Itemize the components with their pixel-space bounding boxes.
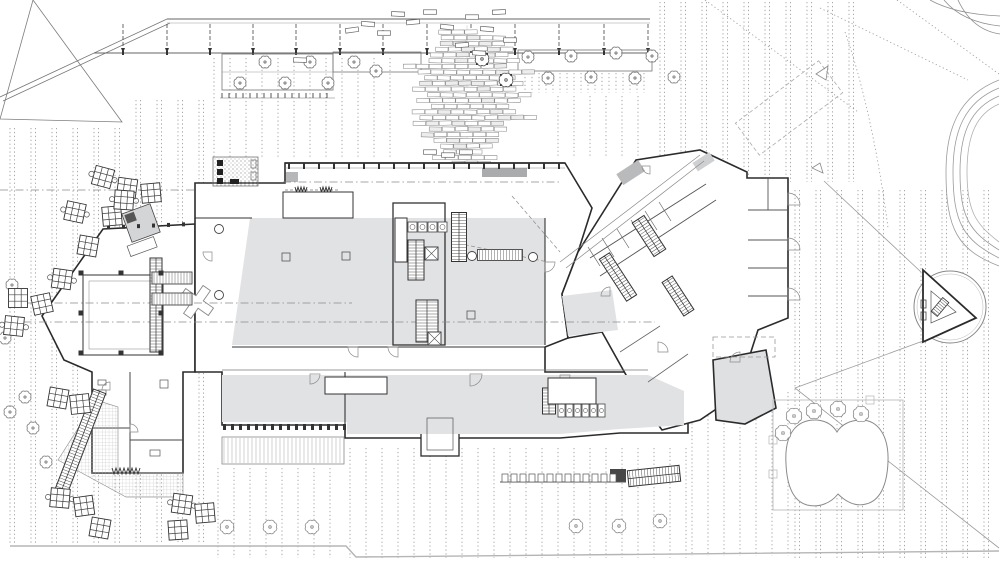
floor-plan-document: architectural-site-plan-ground-floor bbox=[0, 0, 1000, 572]
triangular-kiosk bbox=[914, 270, 986, 343]
se-annex-outline bbox=[713, 350, 776, 424]
west-pavilion-outline bbox=[42, 224, 195, 473]
site-plan-svg: architectural-site-plan-ground-floor bbox=[0, 0, 1000, 572]
